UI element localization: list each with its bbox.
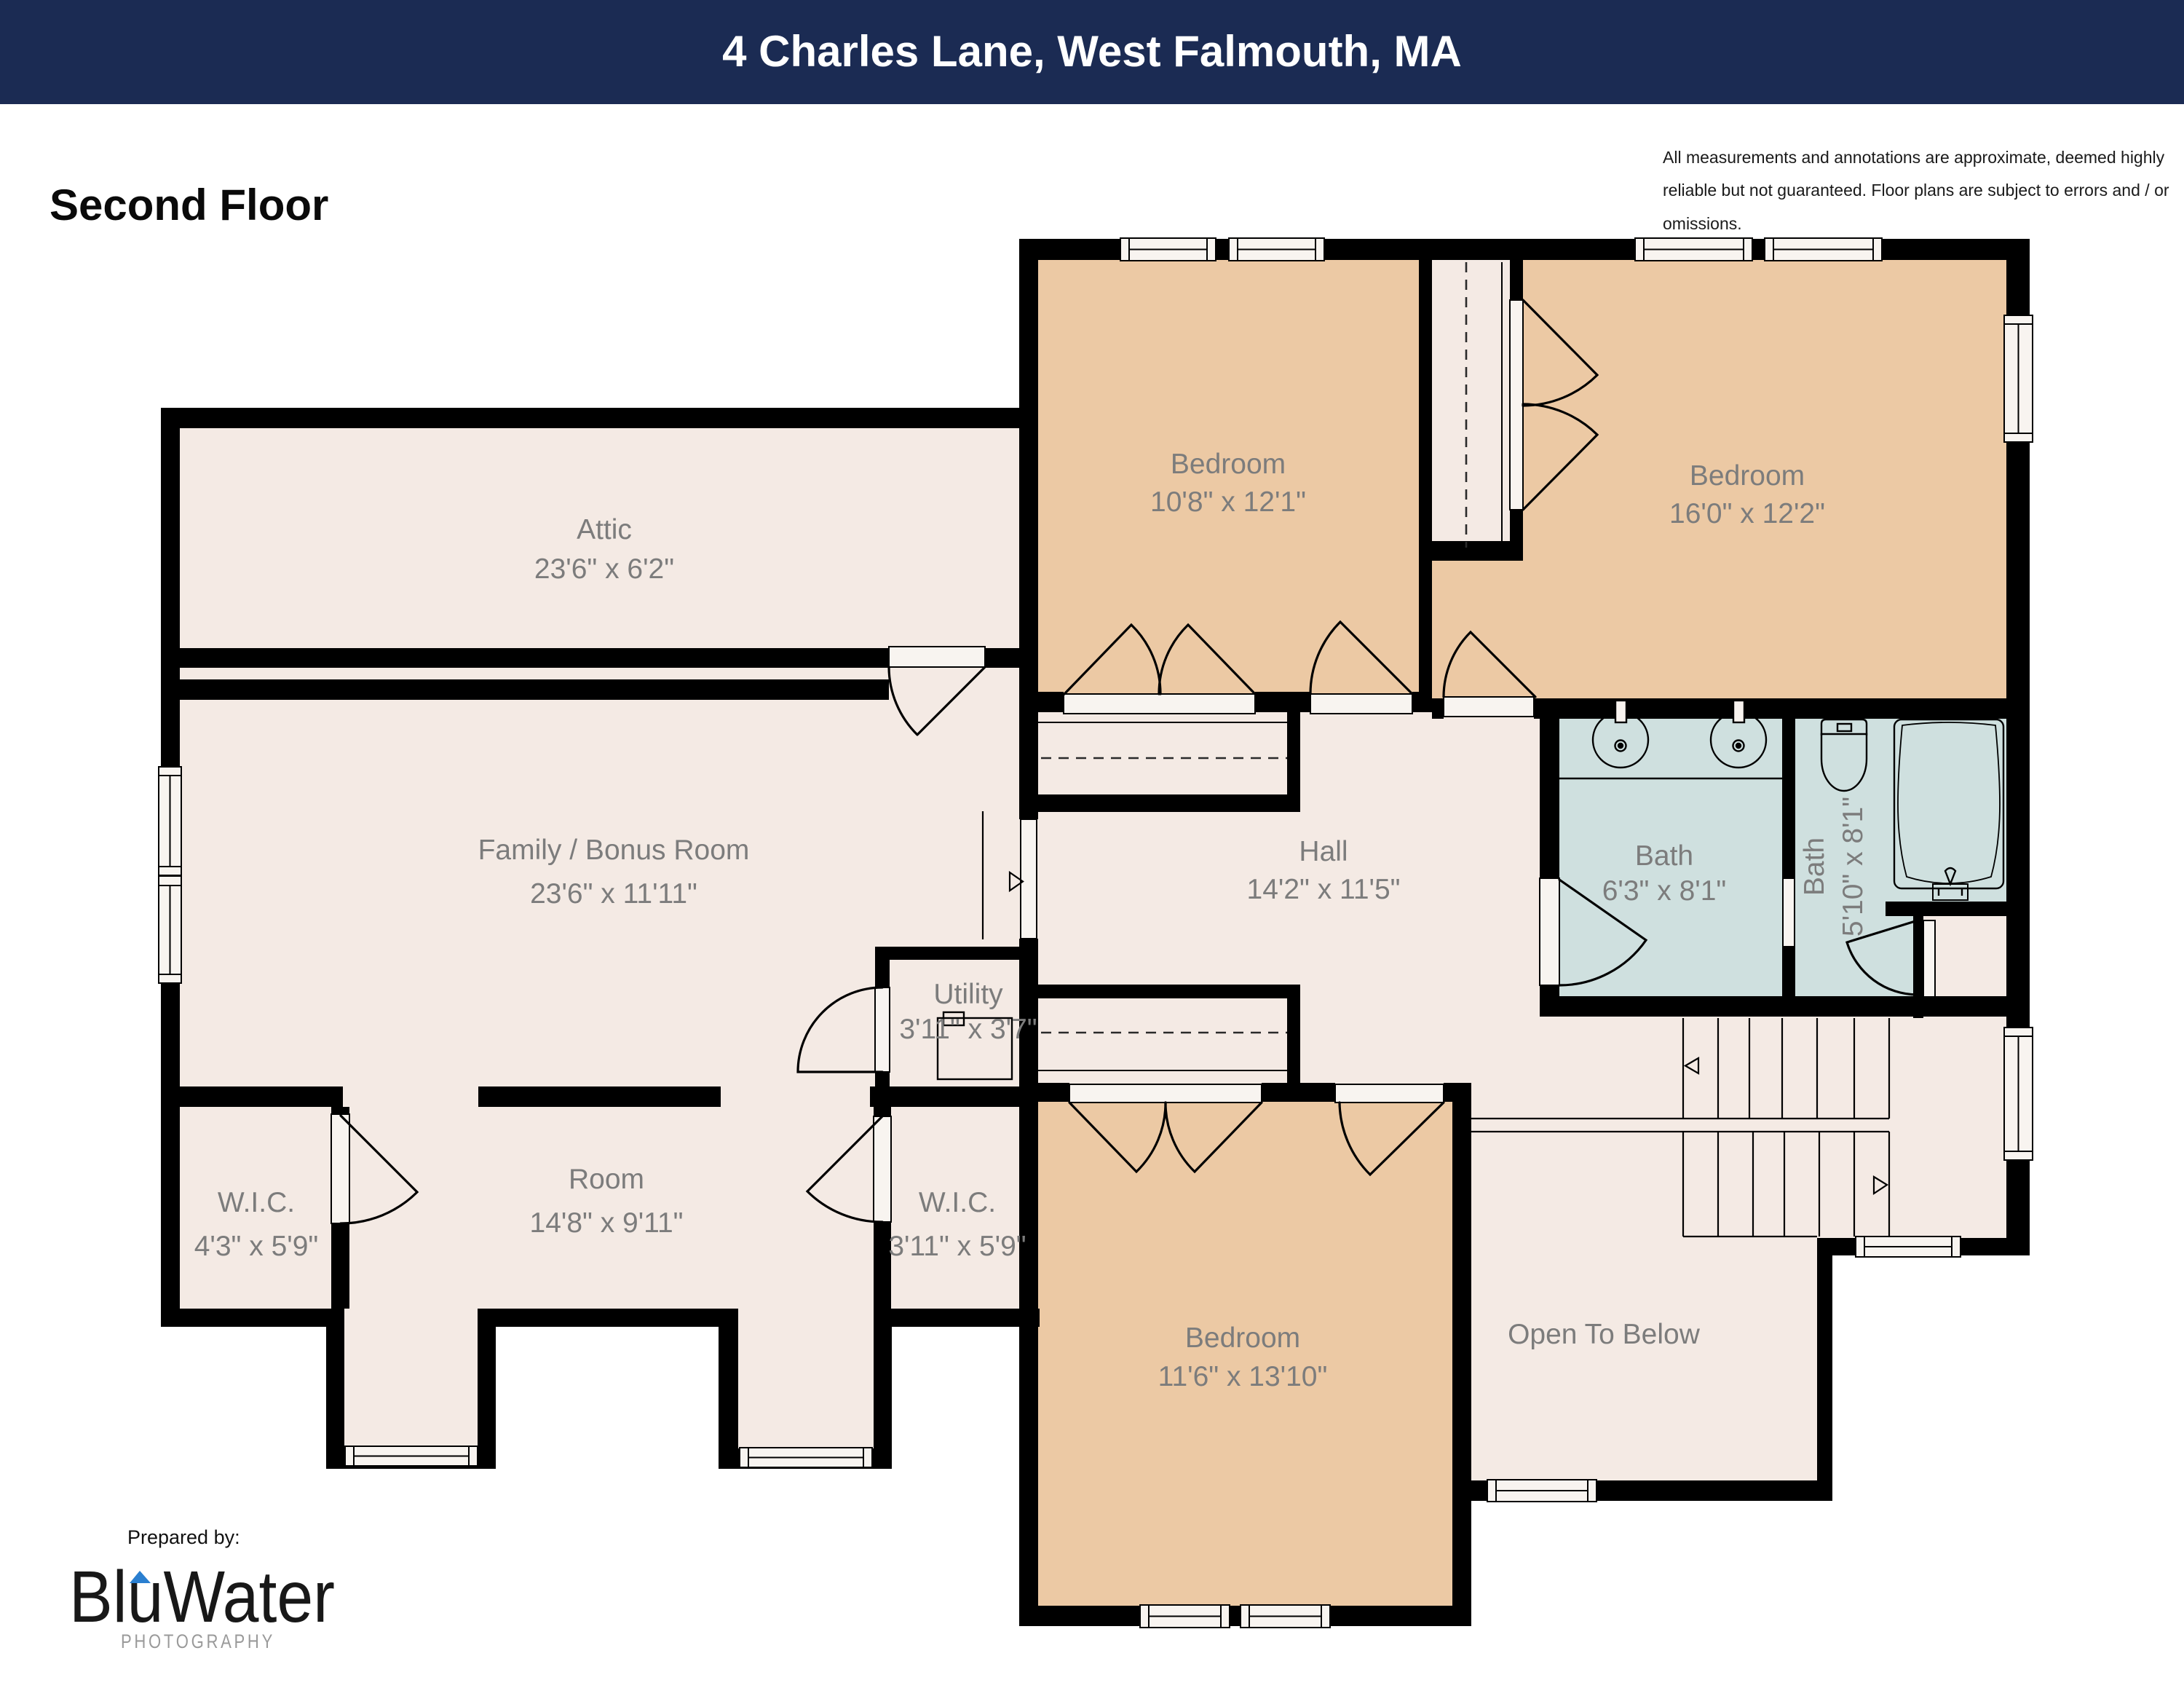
- svg-text:Open To Below: Open To Below: [1508, 1319, 1701, 1350]
- svg-text:Utility: Utility: [933, 979, 1003, 1010]
- svg-text:4 Charles Lane, West Falmouth,: 4 Charles Lane, West Falmouth, MA: [722, 27, 1462, 76]
- svg-text:14'8" x 9'11": 14'8" x 9'11": [530, 1207, 684, 1239]
- svg-text:Second Floor: Second Floor: [50, 181, 328, 229]
- svg-text:3'11" x 5'9": 3'11" x 5'9": [888, 1231, 1026, 1262]
- svg-text:W.I.C.: W.I.C.: [218, 1187, 295, 1218]
- svg-text:3'11" x 3'7": 3'11" x 3'7": [899, 1014, 1037, 1045]
- svg-text:Prepared by:: Prepared by:: [127, 1526, 240, 1548]
- svg-text:Room: Room: [569, 1164, 644, 1195]
- svg-text:Bedroom: Bedroom: [1690, 460, 1805, 492]
- svg-text:omissions.: omissions.: [1663, 214, 1742, 233]
- svg-text:Bedroom: Bedroom: [1185, 1322, 1300, 1354]
- svg-text:Bedroom: Bedroom: [1171, 449, 1286, 480]
- svg-text:Bath: Bath: [1799, 837, 1830, 896]
- svg-text:23'6" x 6'2": 23'6" x 6'2": [534, 553, 674, 585]
- svg-text:All measurements and annotatio: All measurements and annotations are app…: [1663, 148, 2165, 167]
- svg-text:PHOTOGRAPHY: PHOTOGRAPHY: [121, 1630, 275, 1652]
- svg-text:14'2" x 11'5": 14'2" x 11'5": [1247, 874, 1401, 905]
- svg-text:Attic: Attic: [577, 514, 632, 545]
- svg-text:23'6" x 11'11": 23'6" x 11'11": [530, 878, 697, 910]
- svg-text:Bath: Bath: [1635, 840, 1693, 872]
- svg-text:BluWater: BluWater: [69, 1556, 335, 1638]
- svg-text:16'0" x 12'2": 16'0" x 12'2": [1669, 498, 1825, 529]
- svg-text:6'3" x 8'1": 6'3" x 8'1": [1602, 875, 1727, 907]
- svg-text:5'10" x 8'1": 5'10" x 8'1": [1837, 797, 1869, 936]
- svg-text:4'3" x 5'9": 4'3" x 5'9": [194, 1231, 319, 1262]
- svg-text:11'6" x 13'10": 11'6" x 13'10": [1158, 1361, 1328, 1392]
- svg-text:reliable but not guaranteed. F: reliable but not guaranteed. Floor plans…: [1663, 181, 2169, 200]
- svg-text:10'8" x 12'1": 10'8" x 12'1": [1150, 486, 1306, 518]
- svg-text:Family / Bonus Room: Family / Bonus Room: [478, 835, 750, 866]
- svg-text:W.I.C.: W.I.C.: [919, 1187, 996, 1218]
- svg-text:Hall: Hall: [1299, 836, 1348, 867]
